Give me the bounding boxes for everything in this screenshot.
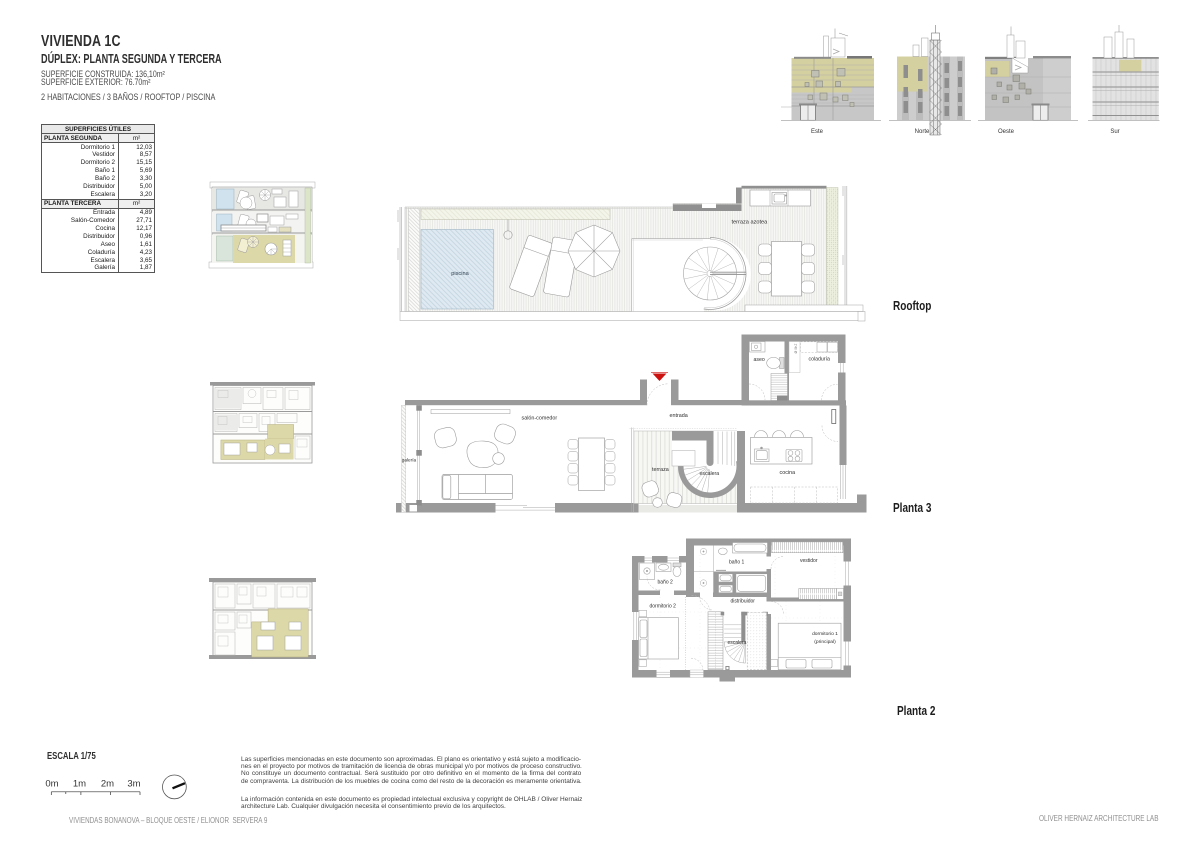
svg-text:terraza: terraza [652, 467, 669, 473]
svg-text:baño 1: baño 1 [729, 560, 745, 566]
svg-text:piscina: piscina [451, 271, 469, 277]
svg-text:1m: 1m [73, 779, 86, 790]
svg-text:cocina: cocina [780, 470, 796, 476]
svg-text:entrada: entrada [670, 413, 688, 419]
svg-text:0m: 0m [45, 779, 58, 790]
svg-text:dormitorio 1: dormitorio 1 [812, 631, 838, 637]
svg-text:2m: 2m [101, 779, 114, 790]
svg-text:aseo: aseo [754, 357, 765, 363]
svg-text:galería: galería [402, 457, 417, 462]
svg-text:terraza azotea: terraza azotea [732, 220, 769, 226]
svg-text:escalera: escalera [728, 640, 747, 646]
svg-text:salón-comedor: salón-comedor [522, 415, 558, 421]
svg-text:1'40 Ø: 1'40 Ø [794, 344, 798, 354]
svg-text:(principal): (principal) [814, 639, 836, 645]
svg-text:baño 2: baño 2 [658, 580, 674, 586]
svg-text:Oeste: Oeste [998, 129, 1015, 135]
svg-text:vestidor: vestidor [800, 558, 818, 564]
svg-text:Este: Este [811, 129, 824, 135]
svg-text:Norte: Norte [915, 129, 930, 135]
svg-text:3m: 3m [127, 779, 140, 790]
svg-text:distribuidor: distribuidor [731, 598, 756, 604]
svg-text:escalera: escalera [700, 471, 720, 477]
svg-text:Sur: Sur [1110, 129, 1119, 135]
svg-text:coladuría: coladuría [809, 357, 830, 363]
svg-text:dormitorio 2: dormitorio 2 [650, 604, 677, 610]
